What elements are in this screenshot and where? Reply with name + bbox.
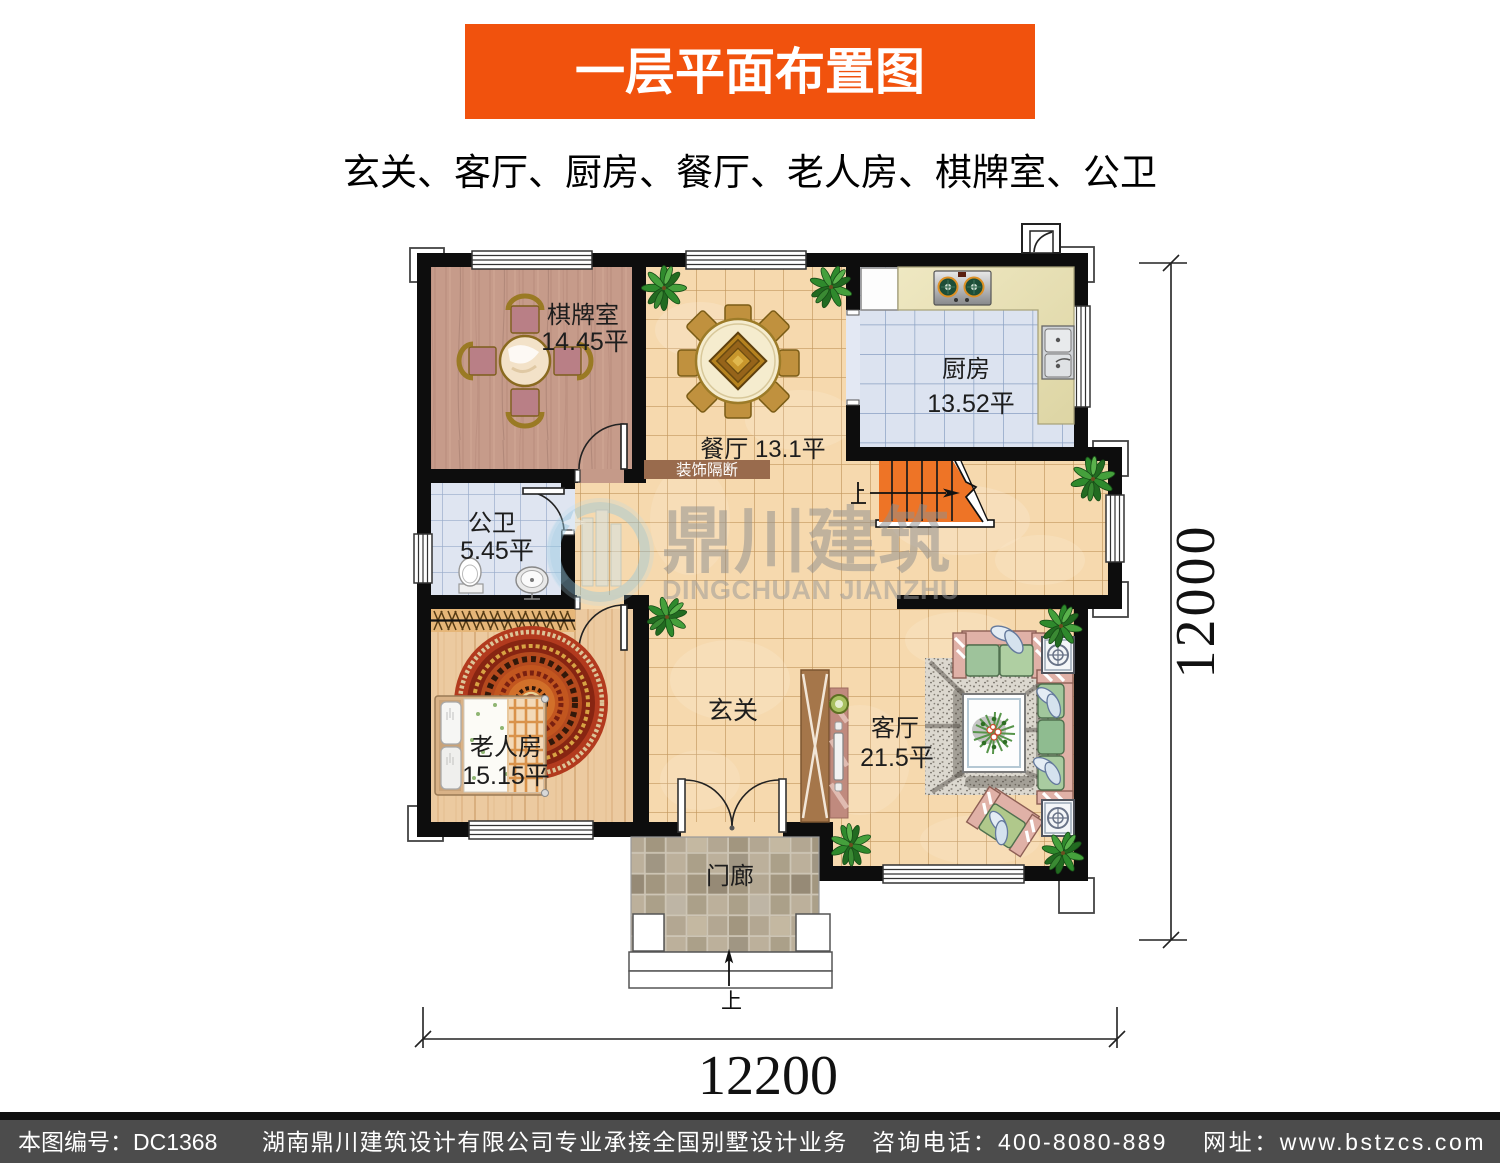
svg-text:上: 上 — [721, 990, 742, 1013]
svg-text:门廊: 门廊 — [706, 863, 754, 890]
svg-text:装饰隔断: 装饰隔断 — [676, 461, 738, 479]
svg-text:DINGCHUAN JIANZHU: DINGCHUAN JIANZHU — [662, 575, 960, 605]
svg-text:客厅: 客厅 — [871, 715, 919, 742]
svg-text:13.52平: 13.52平 — [927, 390, 1015, 418]
svg-text:12000: 12000 — [1165, 524, 1227, 679]
svg-text:老人房: 老人房 — [470, 734, 542, 761]
svg-text:12200: 12200 — [698, 1045, 838, 1107]
svg-text:棋牌室: 棋牌室 — [547, 302, 619, 329]
svg-text:15.15平: 15.15平 — [462, 762, 550, 790]
svg-text:餐厅 13.1平: 餐厅 13.1平 — [700, 436, 825, 463]
svg-text:玄关: 玄关 — [708, 697, 758, 725]
svg-text:公卫: 公卫 — [468, 510, 516, 537]
svg-text:14.45平: 14.45平 — [541, 328, 629, 356]
svg-text:21.5平: 21.5平 — [860, 744, 934, 772]
svg-text:5.45平: 5.45平 — [460, 537, 534, 565]
svg-text:鼎川建筑: 鼎川建筑 — [662, 502, 950, 582]
svg-text:厨房: 厨房 — [942, 356, 990, 383]
